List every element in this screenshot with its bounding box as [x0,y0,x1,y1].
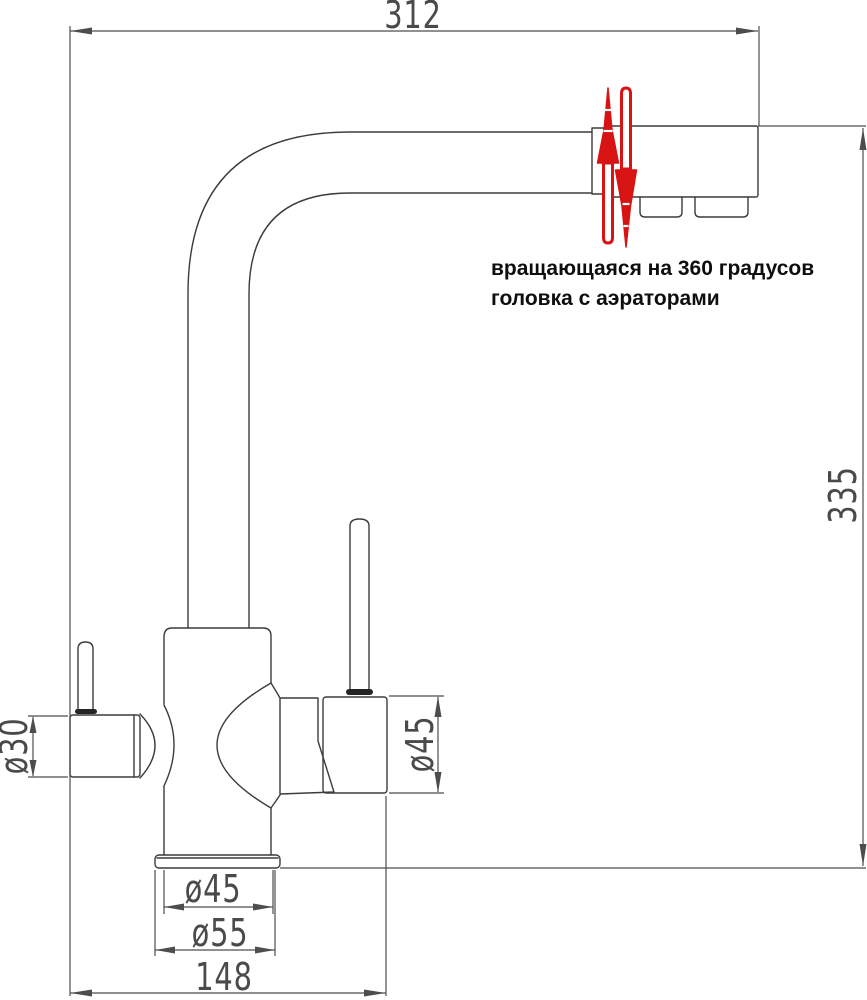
left-joint-inner-arc [140,714,155,778]
rotation-arrow-down-shaft [622,88,631,169]
rotation-arrow-down-tip [616,170,637,247]
rotation-arrow-up-shaft [604,163,613,243]
right-valve-body [323,697,387,793]
right-joint-top-fillet [271,683,280,698]
dim-label-right-valve-diameter: ø45 [401,716,439,773]
right-joint-bottom-fillet [271,795,280,808]
dim-label-top-width: 312 [384,0,441,34]
dim-312 [70,26,759,996]
dim-label-overall-height: 335 [824,466,862,523]
dim-label-left-valve-diameter: ø30 [0,718,33,775]
right-joint-dome-arc [217,683,271,808]
dim-label-base-neck-diameter: ø45 [185,870,242,908]
aerator-right [695,197,748,217]
faucet-dimension-drawing [0,0,867,1000]
dim-335 [280,126,867,868]
dim-label-body-length: 148 [195,958,252,996]
annotation-note: вращающаяся на 360 градусов головка с аэ… [491,254,814,314]
dim-label-base-flange-diameter: ø55 [192,914,249,952]
left-valve-body [70,715,140,777]
annotation-note-line2: головка с аэраторами [491,284,814,314]
rotation-arrows-icon [598,88,637,247]
dimension-linework [28,26,867,997]
left-joint-outer-arc [164,705,174,786]
technical-drawing-canvas: 312 335 ø30 ø45 ø45 ø55 148 вращающаяся … [0,0,867,1000]
left-handle-base [75,709,97,714]
aerator-left [640,197,682,217]
right-valve-collar [280,698,334,794]
left-handle-stick [78,642,93,713]
right-handle-stick [350,519,369,693]
right-handle-base [346,689,373,695]
annotation-note-line1: вращающаяся на 360 градусов [491,254,814,284]
